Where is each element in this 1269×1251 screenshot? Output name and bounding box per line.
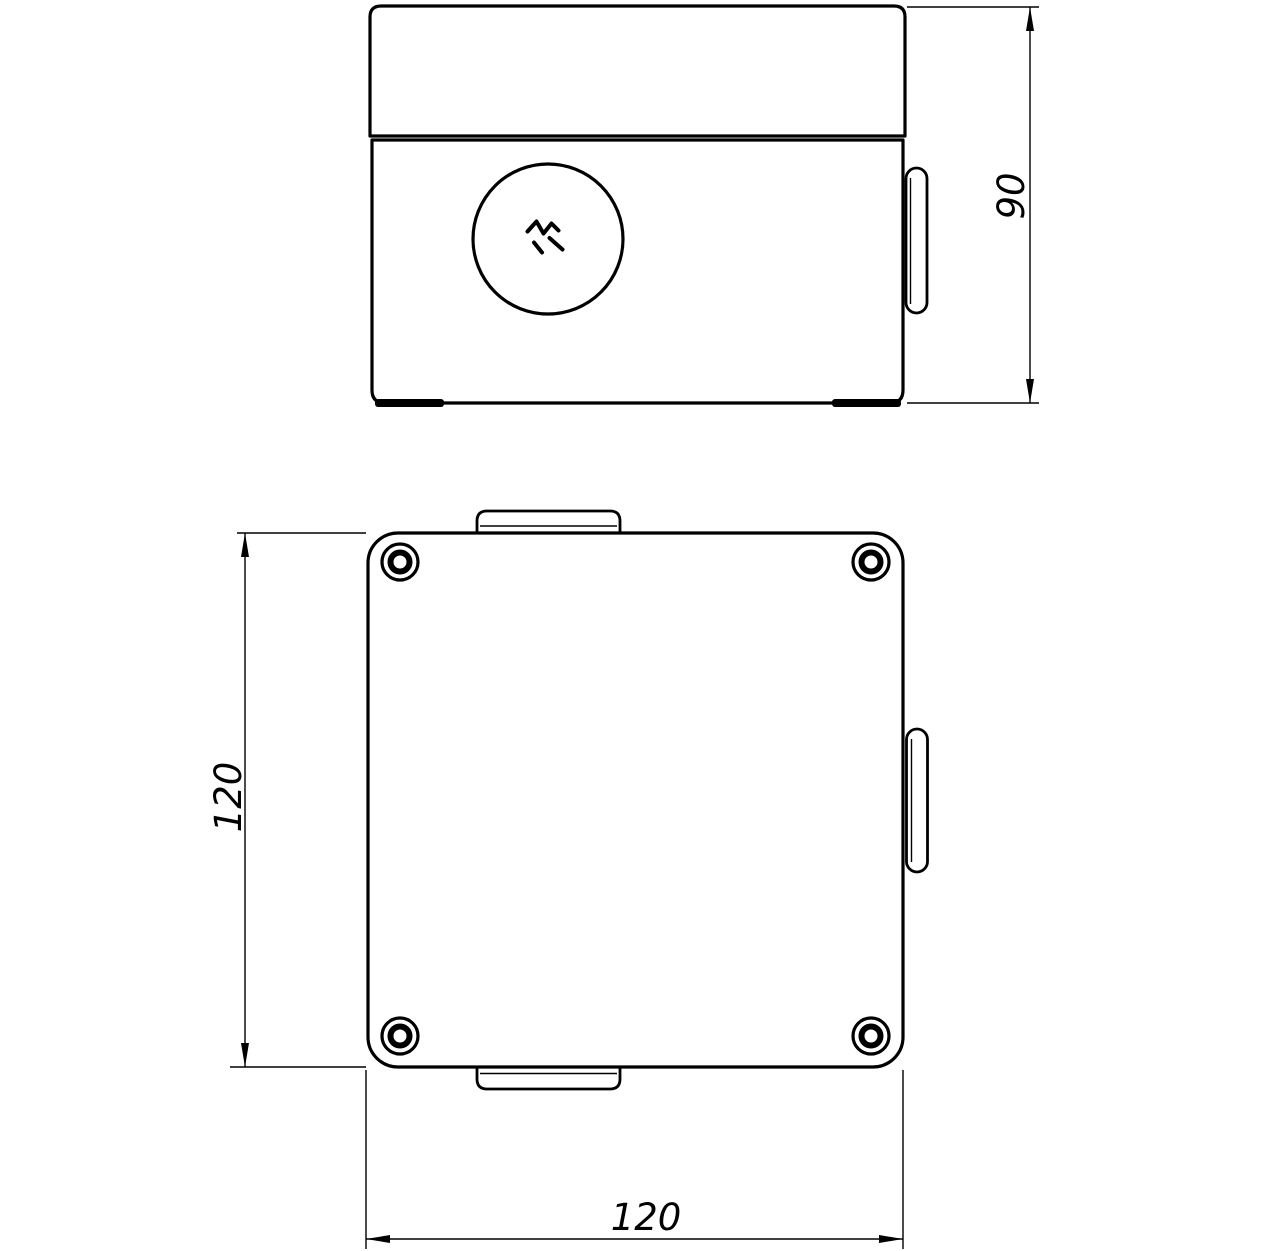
lid-outline bbox=[370, 6, 905, 136]
depth-dimension: 120 bbox=[207, 533, 366, 1067]
mounting-foot-left bbox=[375, 399, 444, 407]
drawing-canvas: 90 bbox=[0, 0, 1269, 1251]
front-view bbox=[370, 6, 927, 407]
plan-tab-bottom bbox=[477, 1068, 620, 1089]
plan-outline bbox=[368, 533, 903, 1067]
height-dimension-label: 90 bbox=[990, 172, 1033, 219]
height-arrow-down bbox=[1026, 379, 1034, 403]
mounting-foot-right bbox=[832, 399, 901, 407]
height-arrow-up bbox=[1026, 7, 1034, 31]
width-arrow-left bbox=[366, 1235, 390, 1243]
plan-tab-right bbox=[907, 729, 928, 872]
depth-arrow-down bbox=[241, 1043, 249, 1067]
plan-tab-bottom-outline bbox=[477, 1068, 620, 1089]
plan-tab-right-outline bbox=[907, 729, 928, 872]
junction-box-drawing: 90 bbox=[0, 0, 1269, 1251]
front-side-tab bbox=[906, 168, 927, 313]
width-dimension: 120 bbox=[366, 1070, 903, 1249]
width-dimension-label: 120 bbox=[611, 1196, 682, 1239]
depth-arrow-up bbox=[241, 533, 249, 557]
knockout-mark-icon bbox=[528, 222, 563, 253]
plan-view bbox=[368, 511, 928, 1089]
depth-dimension-label: 120 bbox=[207, 762, 250, 833]
width-arrow-right bbox=[879, 1235, 903, 1243]
front-side-tab-outline bbox=[906, 168, 927, 313]
plan-tab-top bbox=[477, 511, 620, 532]
body-outline bbox=[372, 140, 903, 403]
plan-tab-top-outline bbox=[477, 511, 620, 532]
